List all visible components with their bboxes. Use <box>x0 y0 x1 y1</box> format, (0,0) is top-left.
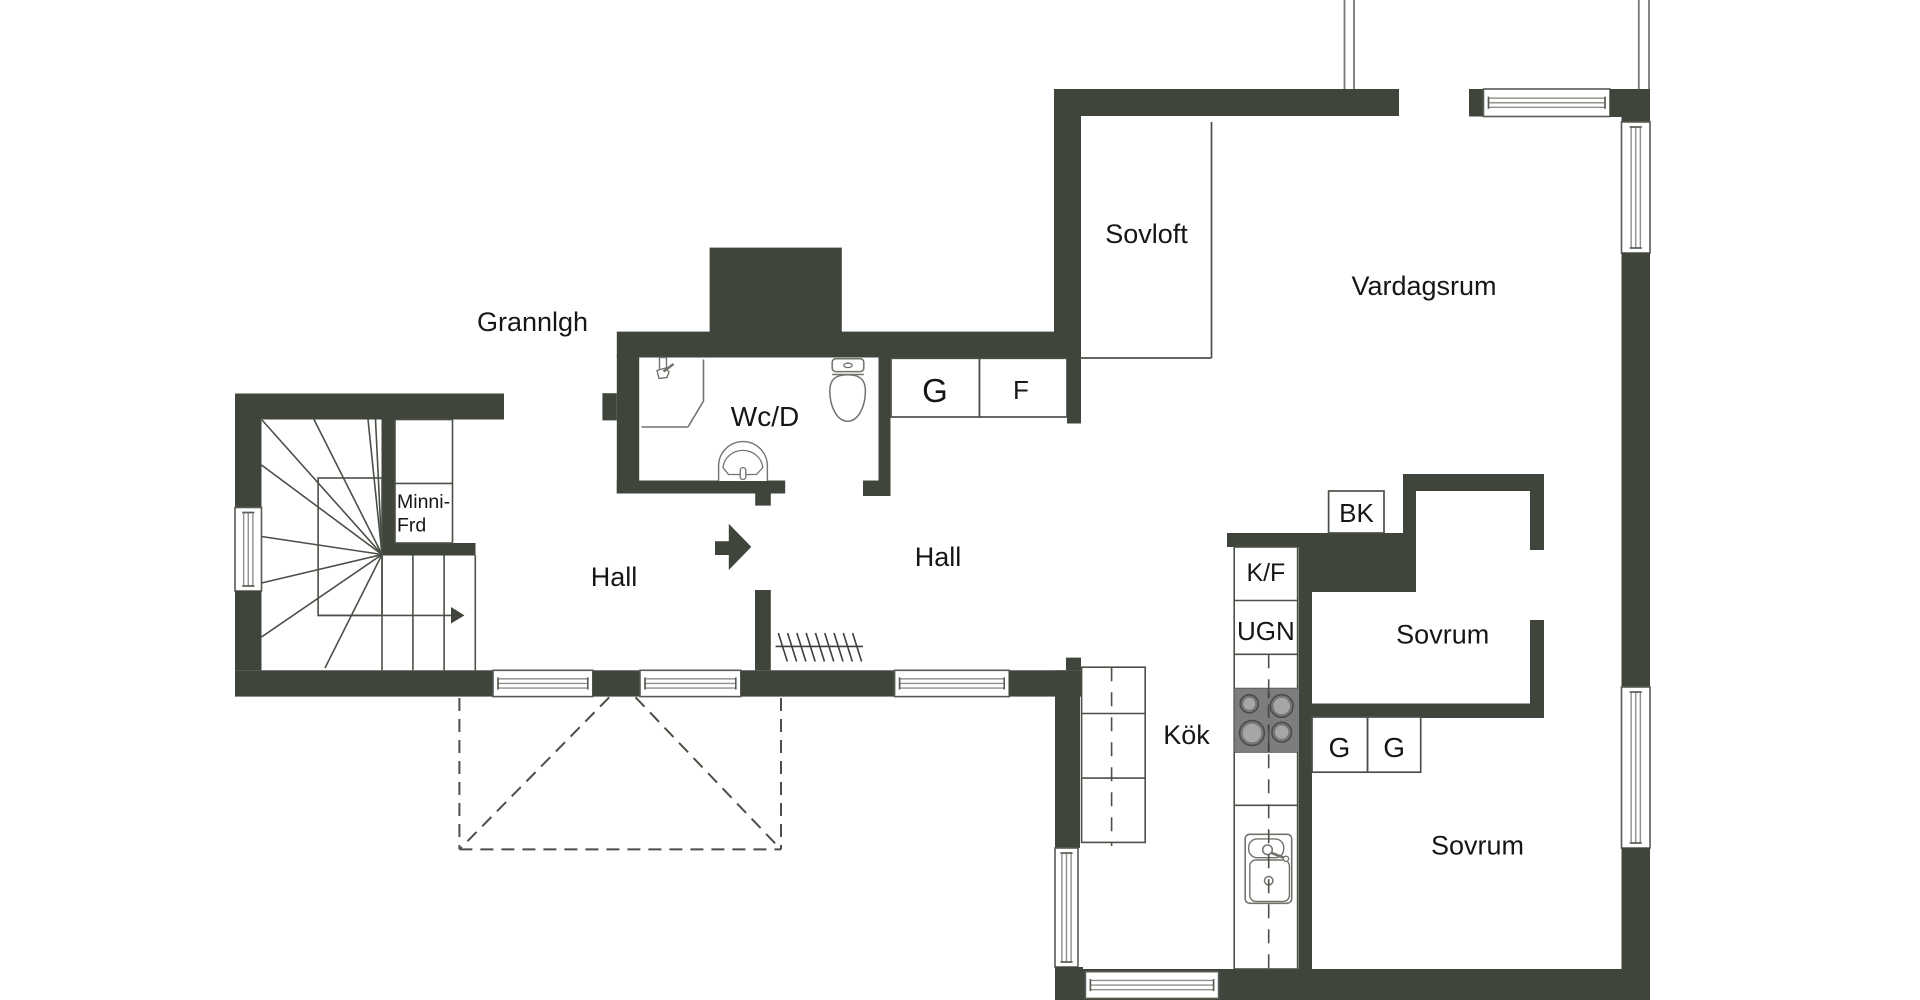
svg-text:Sovrum: Sovrum <box>1431 831 1524 861</box>
svg-text:Sovloft: Sovloft <box>1105 219 1188 249</box>
svg-text:G: G <box>922 372 948 409</box>
svg-text:UGN: UGN <box>1237 616 1295 646</box>
svg-text:Kök: Kök <box>1163 720 1210 750</box>
svg-text:Minni-: Minni- <box>397 491 450 513</box>
svg-text:Frd: Frd <box>397 515 426 537</box>
svg-text:BK: BK <box>1339 498 1374 528</box>
svg-text:G: G <box>1383 732 1405 763</box>
svg-text:Grannlgh: Grannlgh <box>477 307 588 337</box>
svg-text:Sovrum: Sovrum <box>1396 620 1489 650</box>
svg-text:F: F <box>1013 375 1029 405</box>
svg-text:Hall: Hall <box>915 542 962 572</box>
svg-text:K/F: K/F <box>1246 559 1285 587</box>
svg-text:Vardagsrum: Vardagsrum <box>1351 271 1496 301</box>
svg-text:Hall: Hall <box>591 562 638 592</box>
svg-text:Wc/D: Wc/D <box>731 401 799 432</box>
svg-text:G: G <box>1329 732 1351 763</box>
